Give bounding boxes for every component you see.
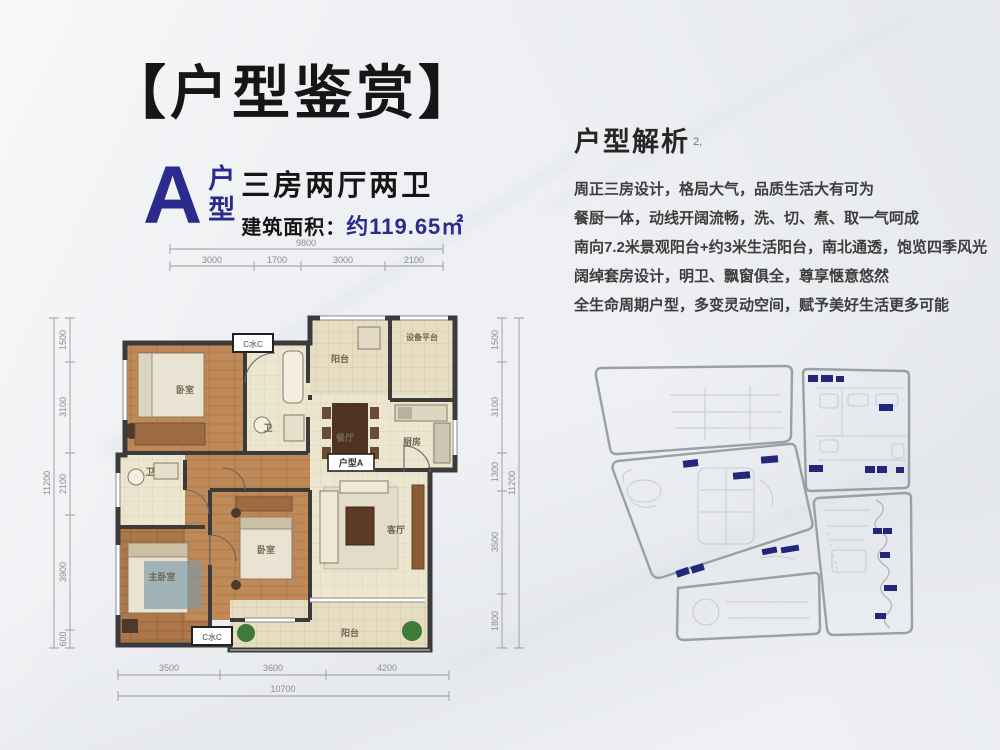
analysis-heading: 户型解析 <box>574 120 690 159</box>
svg-text:C水C: C水C <box>202 632 222 642</box>
dim-top-seg: 3000 <box>202 255 222 265</box>
nightstand <box>122 619 138 633</box>
bed-pillows <box>138 353 152 417</box>
site-plan-drawing <box>580 340 1000 700</box>
wardrobe <box>135 423 205 445</box>
dim-right-seg: 3500 <box>490 532 500 552</box>
analysis-line: 南向7.2米景观阳台+约3米生活阳台，南北通透，饱览四季风光 <box>574 233 1000 262</box>
dim-top-seg: 1700 <box>267 255 287 265</box>
dim-right-seg: 1300 <box>490 462 500 482</box>
site-inner-detail <box>623 386 906 628</box>
unit-type-label: 户 型 <box>208 164 235 226</box>
room-label-living: 客厅 <box>386 524 405 535</box>
dim-top-total: 9800 <box>296 238 316 248</box>
site-plan <box>580 340 1000 700</box>
vanity <box>284 415 304 441</box>
dim-right-seg: 1500 <box>490 330 500 350</box>
dim-top-seg: 2100 <box>404 255 424 265</box>
analysis-line: 全生命周期户型，多变灵动空间，赋予美好生活更多可能 <box>574 291 1000 320</box>
dim-left-seg: 3900 <box>58 562 68 582</box>
window-tag-top: C水C <box>233 334 273 352</box>
vanity <box>154 463 178 479</box>
room-label-bedroom-top: 卧室 <box>176 384 194 395</box>
dining-chair <box>370 407 379 419</box>
dim-bottom-seg: 3500 <box>159 663 179 673</box>
kitchen-appliance <box>434 423 450 463</box>
room-label-bath-master: 卫 <box>145 467 154 477</box>
washer <box>358 327 380 349</box>
analysis-heading-mark: 2, <box>693 136 702 148</box>
dim-right-seg: 3100 <box>490 397 500 417</box>
dim-left-seg: 1500 <box>58 330 68 350</box>
dim-bottom-seg: 4200 <box>377 663 397 673</box>
room-label-balcony-south: 阳台 <box>341 627 359 638</box>
room-label-equipment: 设备平台 <box>406 332 438 342</box>
unit-type-char-top: 户 <box>208 164 235 195</box>
svg-text:C水C: C水C <box>243 339 263 349</box>
unit-description: 三房两厅两卫 建筑面积：约119.65㎡ <box>241 162 464 241</box>
floor-plan-drawing: C水C C水C 户型A 卧室 卫 阳台 设备平台 厨房 餐厅 卫 主卧室 卧室 … <box>40 235 540 735</box>
bathtub <box>283 351 303 403</box>
page-title: 【户型鉴赏】 <box>108 46 480 130</box>
room-label-balcony-north: 阳台 <box>331 353 349 364</box>
dim-right-total: 11200 <box>507 471 517 495</box>
dining-chair <box>370 427 379 439</box>
sofa-seat <box>340 481 388 493</box>
unit-letter: A <box>143 160 202 232</box>
dining-table <box>332 403 368 459</box>
unit-header: A 户 型 三房两厅两卫 建筑面积：约119.65㎡ <box>143 160 464 241</box>
dim-right-seg: 1800 <box>490 611 500 631</box>
svg-text:户型A: 户型A <box>339 457 364 468</box>
kitchen-sink <box>398 407 412 419</box>
sofa <box>320 491 338 563</box>
plant <box>402 621 422 641</box>
plant <box>237 624 255 642</box>
analysis-line: 阔绰套房设计，明卫、飘窗俱全，尊享惬意悠然 <box>574 262 1000 291</box>
unit-type-char-bottom: 型 <box>208 195 235 226</box>
window-tag-bottom: C水C <box>192 627 232 645</box>
room-label-master: 主卧室 <box>148 571 175 582</box>
tv-cabinet <box>412 485 424 569</box>
floor-plan: C水C C水C 户型A 卧室 卫 阳台 设备平台 厨房 餐厅 卫 主卧室 卧室 … <box>40 235 540 735</box>
dim-left-total: 11200 <box>42 471 52 495</box>
room-label-kitchen: 厨房 <box>403 436 421 447</box>
master-rug <box>144 561 202 609</box>
coffee-table <box>346 507 374 545</box>
south-balcony-floor <box>230 600 430 650</box>
room-label-bath-top: 卫 <box>263 423 272 433</box>
nightstand <box>231 508 241 518</box>
analysis-line: 餐厨一体，动线开阔流畅，洗、切、煮、取一气呵成 <box>574 204 1000 233</box>
bed-pillows <box>240 517 292 529</box>
dim-left-seg: 600 <box>58 631 68 646</box>
dim-top-seg: 3000 <box>333 255 353 265</box>
analysis-line: 周正三房设计，格局大气，品质生活大有可为 <box>574 175 1000 204</box>
nightstand <box>231 580 241 590</box>
analysis-section: 户型解析2, 周正三房设计，格局大气，品质生活大有可为 餐厨一体，动线开阔流畅，… <box>574 120 1000 320</box>
unit-layout: 三房两厅两卫 <box>241 162 464 204</box>
equipment-floor <box>390 318 455 400</box>
toilet <box>128 469 144 485</box>
master-pillows <box>128 543 188 557</box>
room-label-bedroom-mid: 卧室 <box>257 544 275 555</box>
dim-bottom-seg: 3600 <box>263 663 283 673</box>
dining-chair <box>322 427 331 439</box>
analysis-paragraphs: 周正三房设计，格局大气，品质生活大有可为 餐厨一体，动线开阔流畅，洗、切、煮、取… <box>574 175 1000 320</box>
dim-bottom-total: 10700 <box>270 684 295 694</box>
wardrobe <box>236 497 292 511</box>
dining-chair <box>322 407 331 419</box>
dim-left-seg: 2100 <box>58 474 68 494</box>
dim-left-seg: 3100 <box>58 397 68 417</box>
unit-tag-box: 户型A <box>328 454 374 471</box>
room-label-dining: 餐厅 <box>335 432 354 443</box>
